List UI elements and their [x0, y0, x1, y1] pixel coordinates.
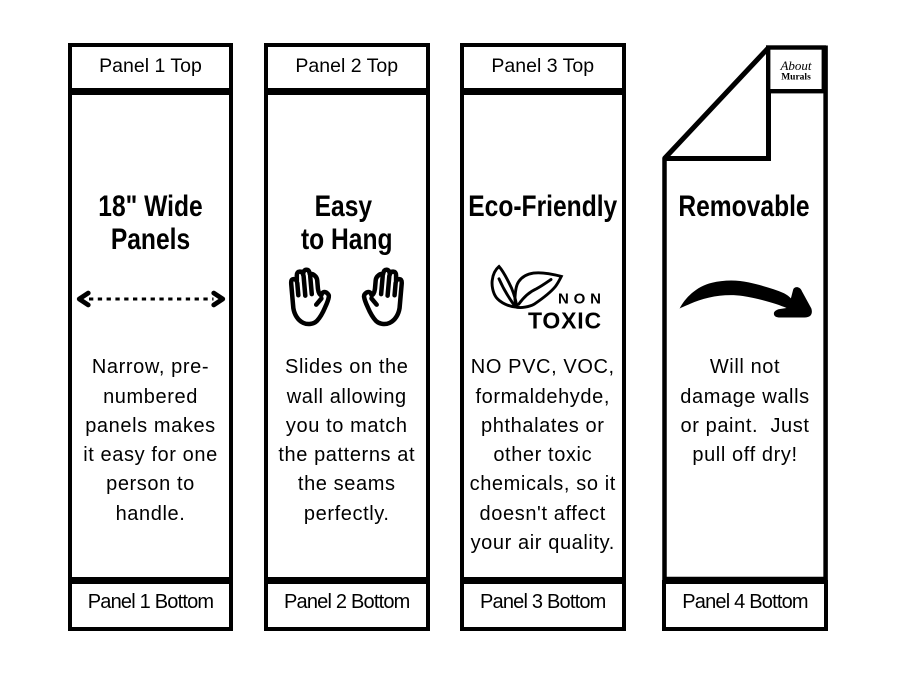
svg-text:About: About: [779, 58, 811, 73]
svg-text:Murals: Murals: [781, 73, 811, 83]
svg-text:TOXIC: TOXIC: [528, 308, 602, 334]
svg-text:NON: NON: [558, 291, 606, 308]
